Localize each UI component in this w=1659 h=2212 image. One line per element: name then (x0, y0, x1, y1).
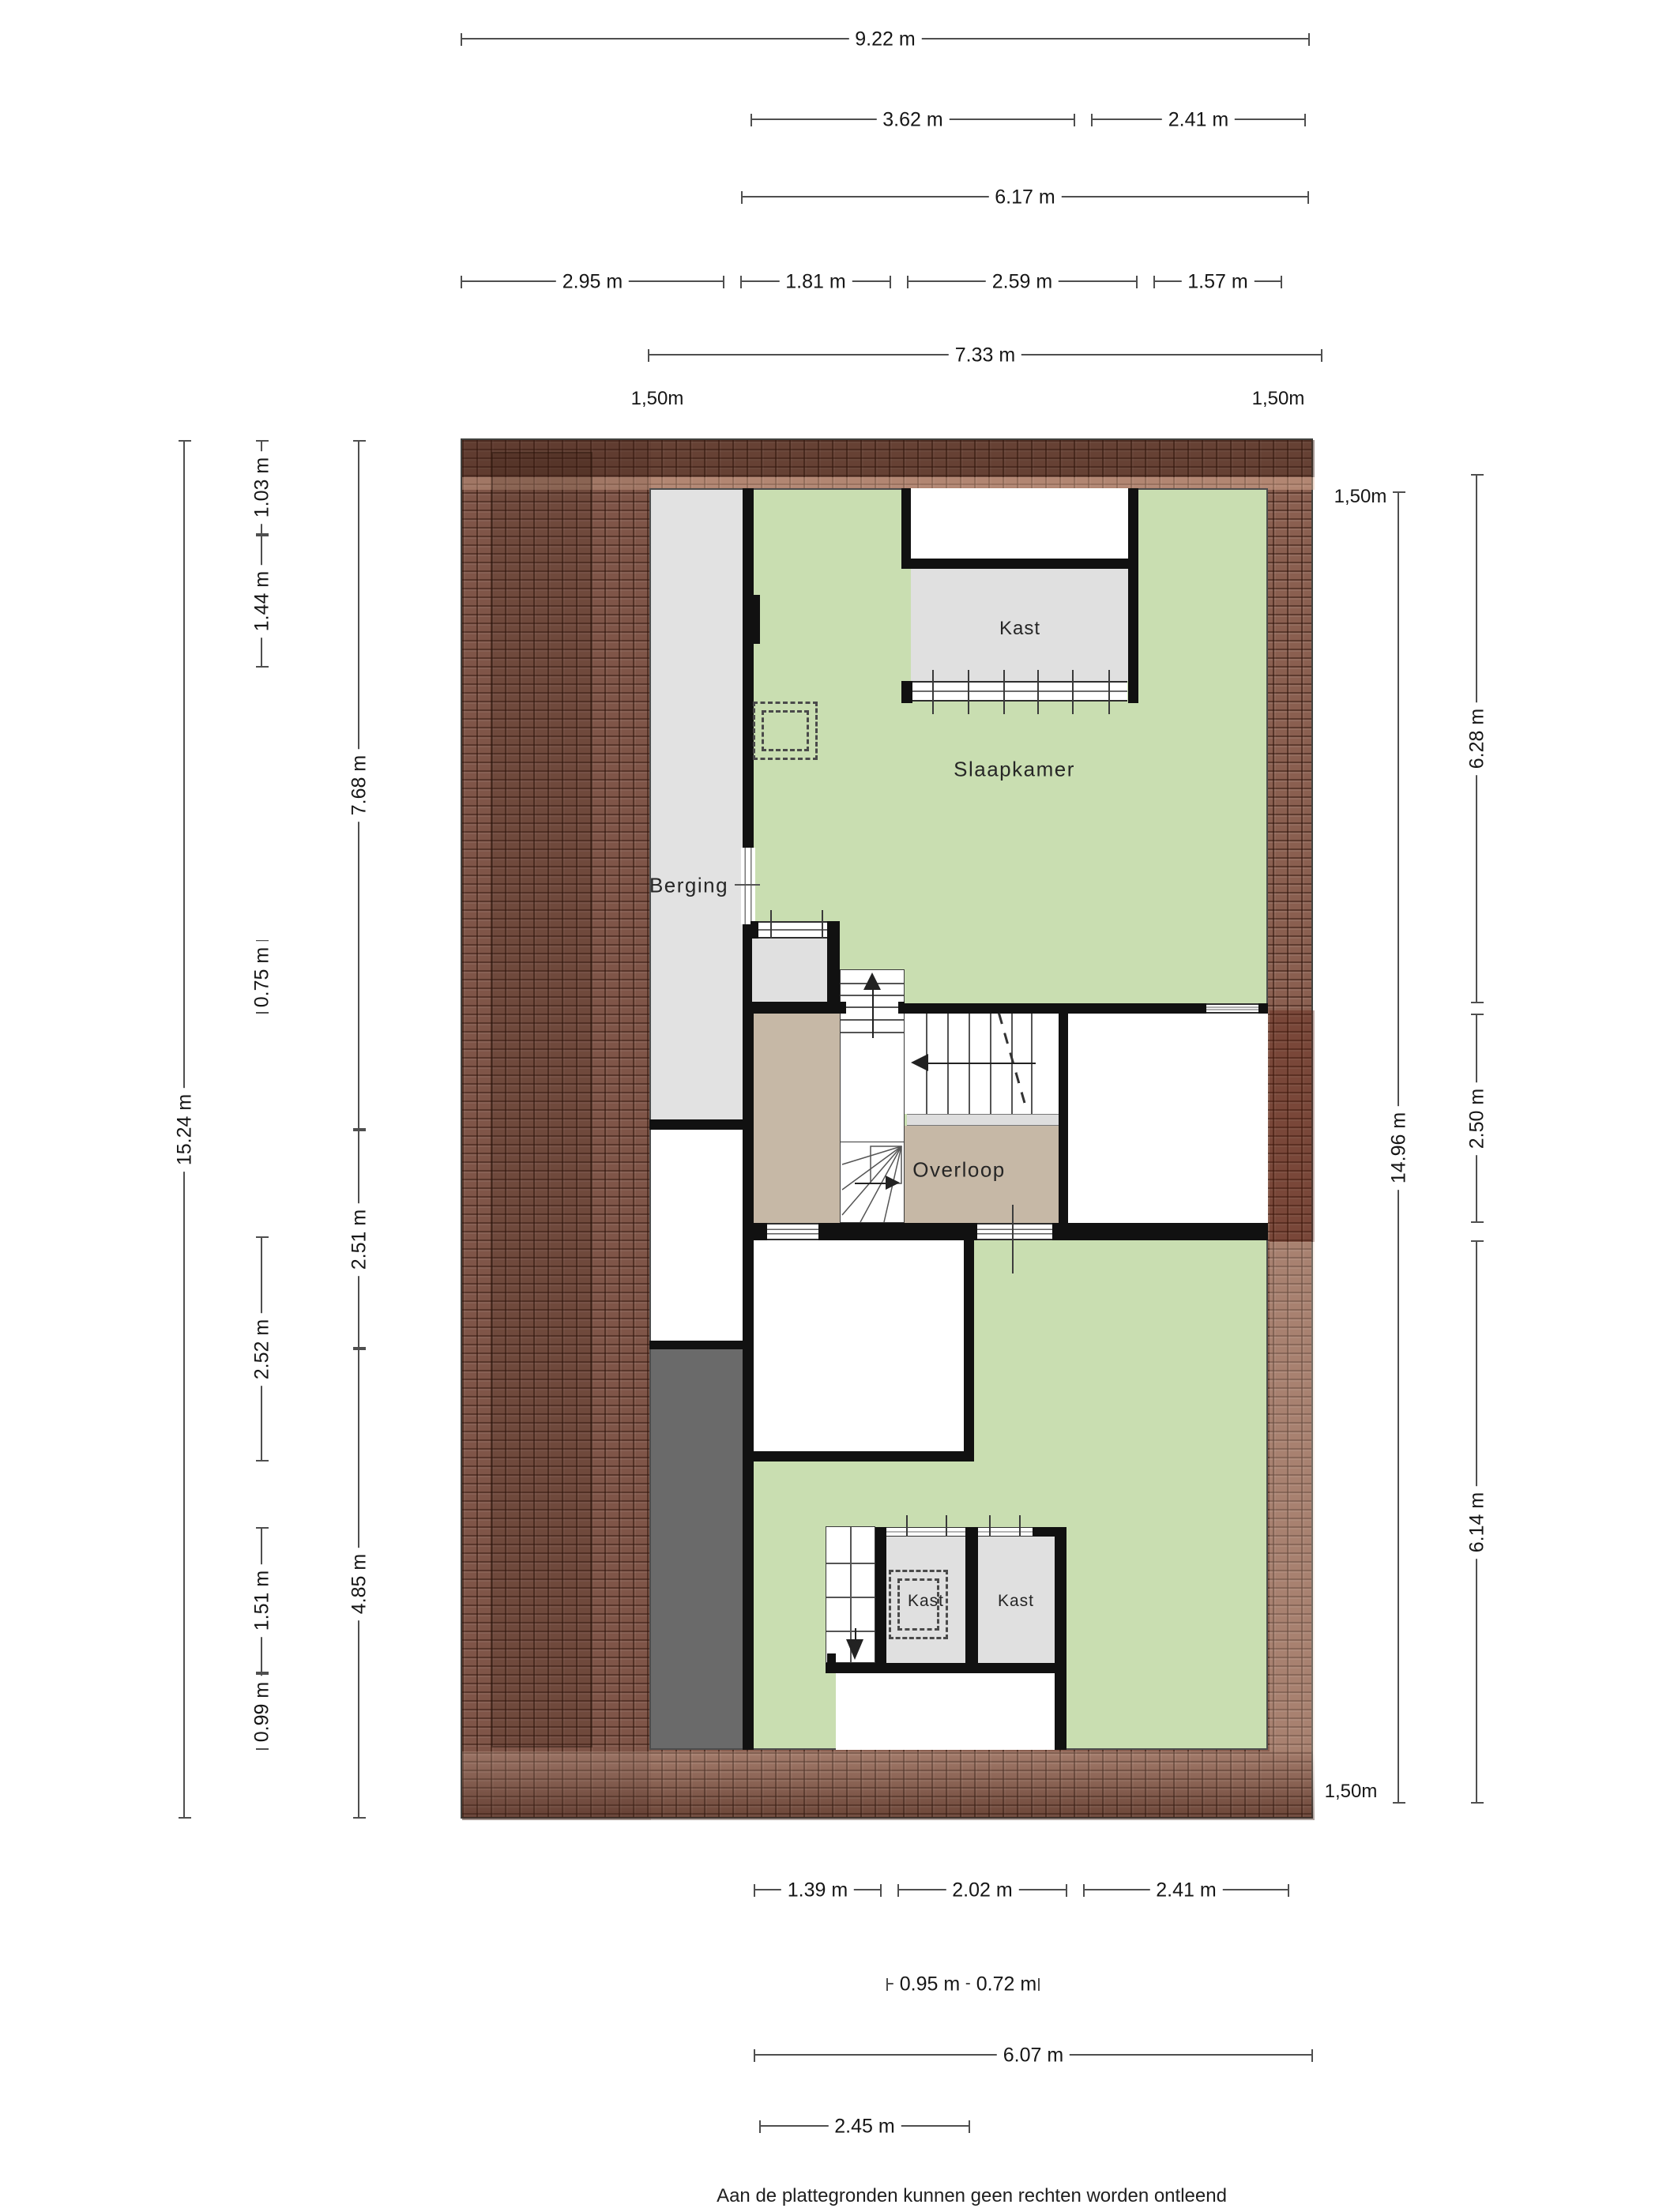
roof-left-inset-plane (491, 452, 592, 1747)
overloop-floor-west (754, 1014, 840, 1223)
dim-label: 0.99 m (250, 1675, 276, 1747)
gray-room-south-wall (750, 1002, 840, 1014)
dim-label: 2.59 m (986, 271, 1059, 294)
dim-label: 1.51 m (250, 1563, 276, 1636)
dim-label: 2.50 m (1465, 1082, 1491, 1154)
dim-label: 1.81 m (779, 271, 852, 294)
slider-tick (1108, 670, 1110, 714)
left-strip-dark-gray (649, 1349, 743, 1750)
dim-bottom-b: 2.02 m (897, 1889, 1067, 1890)
slider-tick (1037, 670, 1039, 714)
chimney-stub (749, 595, 760, 644)
dim-label: 6.17 m (988, 186, 1061, 209)
dim-left-total: 15.24 m (183, 440, 185, 1819)
lower-left-room-east-wall (964, 1240, 974, 1461)
dim-label: 7.33 m (949, 344, 1021, 367)
dim-label: 2.52 m (250, 1312, 276, 1385)
berging-label: Berging (649, 874, 728, 898)
dormer-niche (911, 488, 1128, 559)
dim-top-s4: 1.57 m (1153, 280, 1282, 282)
kast1-sliding-door (886, 1527, 965, 1537)
kast1-west-wall (875, 1527, 886, 1663)
dim-left-g: 7.68 m (358, 440, 359, 1130)
dim-left-d: 2.52 m (261, 1236, 262, 1461)
dim-left-i: 4.85 m (358, 1349, 359, 1819)
berging-bottom-wall (649, 1119, 754, 1130)
dim-bottom-f: 6.07 m (754, 2054, 1313, 2056)
stairs-up-arrow-icon (863, 972, 881, 990)
window-cap (762, 1223, 767, 1240)
dim-label: 2.41 m (1162, 109, 1235, 132)
window-cap (1201, 1003, 1206, 1014)
kast-bottom-left-label: Kast (908, 1592, 944, 1611)
dim-label: 6.28 m (1465, 702, 1491, 775)
dim-top-s1: 2.95 m (461, 280, 724, 282)
berging-floor (649, 488, 743, 1119)
overloop-west-window (762, 1223, 824, 1240)
dim-bottom-c: 2.41 m (1083, 1889, 1289, 1890)
overloop-label: Overloop (912, 1158, 1006, 1183)
lower-left-room-south-wall (743, 1451, 974, 1461)
dim-label: 2.51 m (347, 1202, 373, 1275)
bedroom-south-window (1201, 1003, 1264, 1014)
dim-top-total2: 7.33 m (648, 354, 1322, 355)
stair-landing (907, 1114, 1060, 1126)
floorplan-canvas: Berging Slaapkamer Kast Overloop Kast Ka… (0, 0, 1659, 2212)
dim-label: 7.68 m (347, 748, 373, 821)
dim-label: 4.85 m (347, 1547, 373, 1619)
stair-strip (840, 1041, 905, 1143)
dim-top-inner: 6.17 m (741, 196, 1309, 197)
stairs-down-arrow-icon (886, 1176, 900, 1190)
dim-label: 1.44 m (250, 565, 276, 638)
kast-top-sliding-door (912, 681, 1127, 702)
dim-left-c: 0.75 m (261, 940, 262, 1014)
dim-top-b: 2.41 m (1091, 118, 1306, 120)
slider-tick (1072, 670, 1074, 714)
dim-label: 2.41 m (1149, 1879, 1222, 1902)
dim-bottom-e: 0.72 m (973, 1983, 1040, 1984)
headroom-label-right-top: 1,50m (1331, 486, 1390, 508)
gray-room-sliding-door (758, 921, 827, 939)
stairs-arrow-left-icon (911, 1054, 928, 1071)
slider-tick (932, 670, 934, 714)
kast2-east-wall (1055, 1527, 1066, 1750)
kast-bottom-right-label: Kast (998, 1592, 1034, 1611)
dim-bottom-a: 1.39 m (754, 1889, 882, 1890)
kast2-sliding-door (978, 1527, 1033, 1537)
roof-bottom-band (462, 1751, 1315, 1820)
dim-top-a: 3.62 m (750, 118, 1075, 120)
skylight-dashed-outline (753, 702, 818, 760)
dim-left-b: 1.44 m (261, 535, 262, 668)
roof-right-plane-light (1270, 1242, 1315, 1751)
skylight-inner-outline (762, 710, 809, 751)
closet-south-wall (826, 1663, 1066, 1673)
dim-label: 14.96 m (1386, 1105, 1413, 1189)
dim-left-f: 0.99 m (261, 1673, 262, 1750)
slider-tick (1003, 670, 1005, 714)
window-cap (818, 1223, 824, 1240)
overloop-east-wall (1059, 1014, 1068, 1223)
slaapkamer-label: Slaapkamer (954, 758, 1075, 782)
dim-label: 6.07 m (997, 2045, 1070, 2067)
stair-wall-stub (840, 1002, 846, 1014)
dim-label: 0.75 m (250, 940, 276, 1013)
lower-left-white-room (754, 1240, 964, 1451)
dim-top-s3: 2.59 m (907, 280, 1138, 282)
dim-label: 15.24 m (172, 1087, 198, 1171)
kast-top-north-wall (901, 559, 1138, 569)
dim-label: 2.95 m (556, 271, 629, 294)
dim-label: 0.95 m (893, 1973, 966, 1996)
right-room-floor (1068, 1014, 1268, 1223)
bedroom-south-wall (905, 1003, 1201, 1014)
dim-left-h: 2.51 m (358, 1130, 359, 1349)
dim-label: 1.03 m (250, 451, 276, 524)
dim-label: 1.57 m (1181, 271, 1254, 294)
disclaimer-text: Aan de plattegronden kunnen geen rechten… (717, 2185, 1227, 2207)
kast-top-east-wall (1128, 488, 1138, 703)
slider-tick (968, 670, 969, 714)
dark-gray-top-wall (649, 1341, 743, 1349)
dim-label: 1.39 m (781, 1879, 854, 1902)
dim-bottom-g: 2.45 m (759, 2125, 970, 2127)
berging-east-wall (743, 488, 754, 1750)
dim-label: 0.72 m (970, 1973, 1043, 1996)
dim-label: 3.62 m (876, 109, 949, 132)
door-swing-line (1012, 1205, 1014, 1273)
berging-door (741, 848, 755, 924)
dim-label: 2.02 m (946, 1879, 1018, 1902)
dim-top-s2: 1.81 m (740, 280, 891, 282)
dim-bottom-d: 0.95 m (886, 1983, 973, 1984)
dormer-west-wall (901, 488, 911, 569)
dim-left-a: 1.03 m (261, 440, 262, 535)
dim-label: 6.14 m (1465, 1485, 1491, 1558)
gray-room-floor (752, 939, 827, 1002)
berging-door-tick (735, 884, 760, 886)
dim-right-b: 2.50 m (1476, 1014, 1477, 1223)
kast-top-slider-stub-left (901, 681, 912, 703)
dim-right-c: 6.14 m (1476, 1240, 1477, 1804)
roof-right-plane-dark (1270, 1010, 1315, 1242)
overloop-south-door (977, 1223, 1052, 1240)
ladder-down-arrow-icon (846, 1639, 863, 1660)
dim-label: 9.22 m (848, 28, 921, 51)
headroom-label-right-bottom: 1,50m (1322, 1781, 1381, 1803)
dim-total-width: 9.22 m (461, 38, 1310, 39)
kast-mid-wall (965, 1527, 978, 1663)
dim-left-e: 1.51 m (261, 1527, 262, 1673)
headroom-label-top-right: 1,50m (1249, 388, 1308, 410)
dim-label: 2.45 m (828, 2116, 901, 2139)
bottom-dormer-room (836, 1673, 1055, 1750)
gray-room-east-wall (827, 921, 840, 1014)
left-strip-white-room (649, 1130, 743, 1341)
dim-right-a: 6.28 m (1476, 474, 1477, 1003)
headroom-label-top-left: 1,50m (628, 388, 687, 410)
window-cap (1258, 1003, 1268, 1014)
dim-right-total: 14.96 m (1398, 491, 1399, 1804)
kast-top-label: Kast (999, 618, 1040, 640)
stair-wall-stub (898, 1002, 905, 1014)
